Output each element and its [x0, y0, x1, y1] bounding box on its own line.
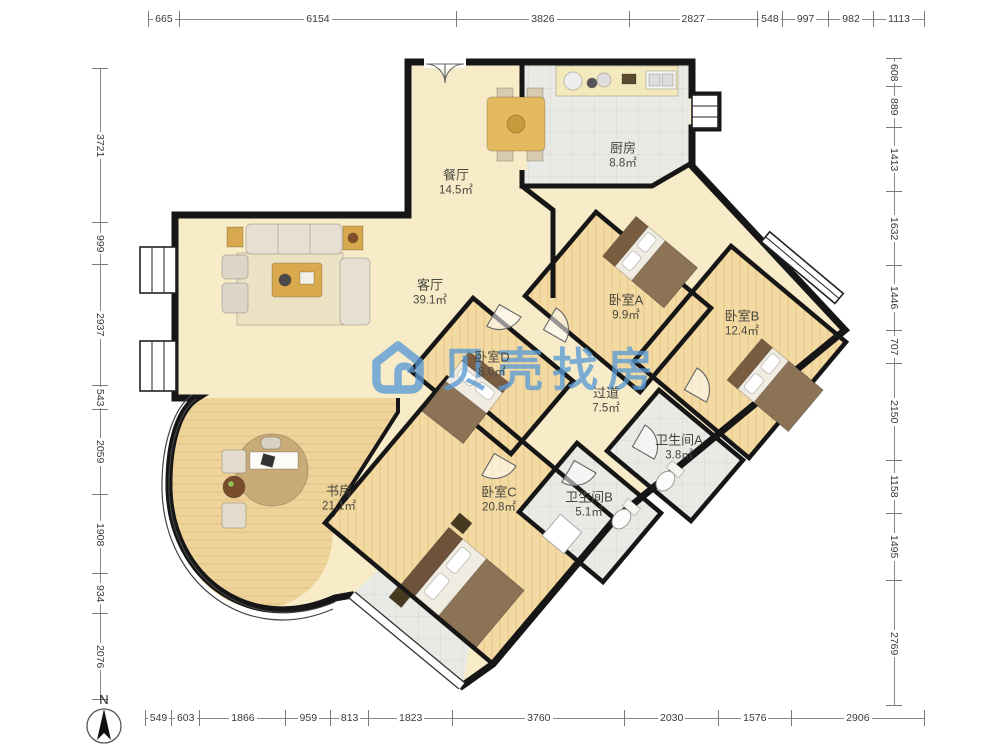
- dimension-segment: 1632: [886, 191, 902, 265]
- ruler-top: 6656154382628275489979821113: [148, 11, 925, 27]
- dimension-segment: 1866: [199, 710, 285, 726]
- dimension-segment: 543: [92, 385, 108, 408]
- living-bay-window-1: [140, 247, 176, 293]
- dimension-segment: 1576: [718, 710, 791, 726]
- dimension-segment: 1908: [92, 494, 108, 573]
- dimension-segment: 2827: [629, 11, 757, 27]
- dimension-value: 3721: [94, 132, 106, 159]
- compass-label: N: [82, 694, 126, 706]
- dimension-value: 548: [759, 13, 781, 25]
- dimension-segment: 3826: [456, 11, 629, 27]
- dimension-segment: 2150: [886, 363, 902, 460]
- dimension-value: 813: [339, 712, 361, 724]
- dimension-segment: 889: [886, 86, 902, 127]
- dimension-value: 3826: [529, 13, 556, 25]
- dimension-segment: 1158: [886, 460, 902, 513]
- kitchen-bay-window: [692, 95, 718, 128]
- dimension-value: 982: [840, 13, 862, 25]
- dimension-value: 1446: [888, 284, 900, 311]
- dimension-segment: 813: [330, 710, 368, 726]
- dimension-value: 889: [888, 96, 900, 118]
- dimension-value: 549: [148, 712, 170, 724]
- dimension-value: 2769: [888, 630, 900, 657]
- dimension-value: 1632: [888, 215, 900, 242]
- kitchen-counter: [556, 66, 678, 96]
- dimension-segment: 959: [285, 710, 330, 726]
- dimension-value: 707: [888, 336, 900, 358]
- dimension-value: 1908: [94, 521, 106, 548]
- dimension-value: 3760: [525, 712, 552, 724]
- dimension-value: 2150: [888, 398, 900, 425]
- dimension-value: 2076: [94, 643, 106, 670]
- dimension-segment: 2076: [92, 613, 108, 700]
- dimension-segment: 1113: [873, 11, 925, 27]
- dimension-segment: 603: [171, 710, 199, 726]
- dimension-segment: 2937: [92, 264, 108, 386]
- dimension-value: 2059: [94, 438, 106, 465]
- dimension-segment: 707: [886, 330, 902, 363]
- dimension-value: 6154: [304, 13, 331, 25]
- dimension-segment: 1446: [886, 265, 902, 331]
- dimension-segment: 1823: [368, 710, 452, 726]
- dimension-segment: 1495: [886, 513, 902, 581]
- dimension-segment: 934: [92, 573, 108, 612]
- dimension-value: 2030: [658, 712, 685, 724]
- dimension-value: 1576: [741, 712, 768, 724]
- dining-table: [487, 88, 545, 161]
- side-table: [227, 227, 243, 247]
- dimension-value: 1113: [886, 13, 912, 25]
- dimension-segment: 3721: [92, 68, 108, 222]
- dimension-segment: 2059: [92, 409, 108, 495]
- dimension-value: 2937: [94, 311, 106, 338]
- watermark-logo-icon: [368, 337, 428, 397]
- dimension-segment: 982: [828, 11, 873, 27]
- compass-icon: [87, 709, 121, 743]
- dimension-value: 999: [94, 233, 106, 255]
- dimension-value: 2906: [844, 712, 871, 724]
- dimension-value: 934: [94, 583, 106, 605]
- dimension-segment: 549: [145, 710, 171, 726]
- living-bay-window-2: [140, 341, 176, 391]
- dimension-segment: 608: [886, 58, 902, 86]
- dimension-value: 1823: [397, 712, 424, 724]
- dimension-value: 1495: [888, 533, 900, 560]
- dimension-segment: 6154: [179, 11, 456, 27]
- watermark: 贝壳找房: [368, 334, 662, 400]
- dimension-value: 608: [888, 62, 900, 84]
- dimension-value: 1158: [888, 473, 900, 500]
- dimension-value: 665: [153, 13, 175, 25]
- ruler-left: 37219992937543205919089342076: [92, 68, 108, 700]
- dimension-value: 543: [94, 387, 106, 409]
- watermark-text: 贝壳找房: [442, 334, 662, 400]
- dimension-value: 603: [175, 712, 197, 724]
- dimension-value: 1413: [888, 146, 900, 173]
- ruler-right: 6088891413163214467072150115814952769: [886, 58, 902, 706]
- dimension-segment: 997: [782, 11, 828, 27]
- dimension-value: 1866: [229, 712, 256, 724]
- dimension-segment: 2906: [791, 710, 925, 726]
- dimension-segment: 665: [148, 11, 179, 27]
- ruler-bottom: 549603186695981318233760203015762906: [145, 710, 925, 726]
- dimension-segment: 1413: [886, 127, 902, 191]
- floorplan-canvas: 贝壳找房 餐厅 14.5㎡ 厨房 8.8㎡ 客厅 39.1㎡ 卧室A 9.9㎡ …: [0, 0, 1000, 750]
- dimension-value: 997: [795, 13, 817, 25]
- dimension-segment: 2769: [886, 580, 902, 706]
- dimension-value: 2827: [680, 13, 707, 25]
- dimension-segment: 999: [92, 222, 108, 264]
- dimension-segment: 2030: [624, 710, 717, 726]
- dimension-segment: 3760: [452, 710, 624, 726]
- dimension-value: 959: [298, 712, 320, 724]
- dimension-segment: 548: [757, 11, 783, 27]
